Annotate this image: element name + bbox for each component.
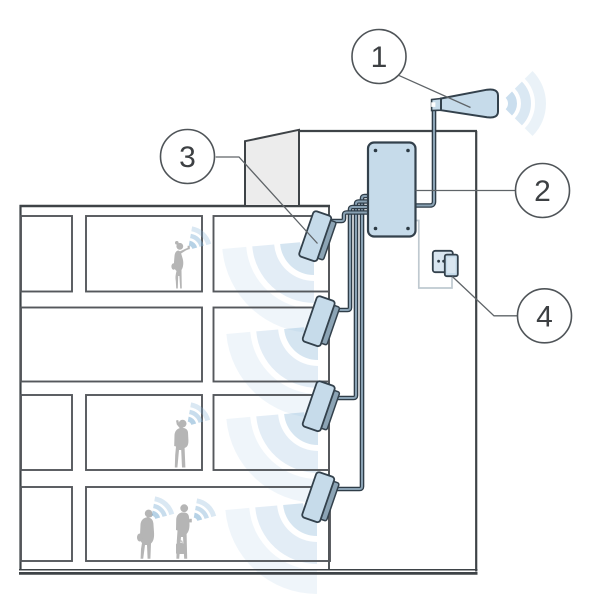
signal-booster-diagram: 1 2 3 4 <box>0 0 600 600</box>
person-floor4-man-phone-at-ear <box>137 510 154 559</box>
screw <box>406 149 410 153</box>
diagram-canvas: 1 2 3 4 <box>0 0 600 600</box>
callouts: 1 2 3 4 <box>161 30 572 343</box>
room <box>86 216 202 292</box>
room <box>21 487 72 561</box>
callout-2-number: 2 <box>534 175 551 208</box>
screw <box>374 227 378 231</box>
phone-signal-floor3 <box>188 402 210 424</box>
roof-penthouse <box>245 130 299 206</box>
booster-enclosure <box>368 143 416 237</box>
screw <box>374 149 378 153</box>
person-floor1-woman-with-phone <box>171 241 189 289</box>
callout-4-leader <box>452 277 518 316</box>
phone-signal-floor4-right <box>194 498 216 520</box>
outdoor-signal-fan <box>506 71 546 136</box>
person-floor3-man-with-phone <box>174 420 188 468</box>
screw <box>406 227 410 231</box>
indoor-antenna-floor1 <box>298 210 337 264</box>
indoor-antenna-floor3 <box>302 380 341 434</box>
phone-signal-floor4-left <box>152 496 174 518</box>
power-plug-face <box>447 257 455 273</box>
outlet-hole <box>437 260 440 263</box>
callout-1-number: 1 <box>371 41 388 74</box>
callout-4-number: 4 <box>536 300 553 333</box>
phone-signal-fans <box>152 226 216 520</box>
room <box>21 308 202 382</box>
room <box>21 216 72 292</box>
room <box>21 395 72 470</box>
mount-notch <box>431 102 435 107</box>
power-connection <box>416 221 458 289</box>
phone-signal-floor1 <box>189 226 211 248</box>
outdoor-donor-antenna <box>431 71 546 136</box>
callout-3-number: 3 <box>179 141 196 174</box>
indoor-antenna-floor2 <box>302 295 341 349</box>
outdoor-antenna-body <box>441 89 498 117</box>
person-floor4-man-with-briefcase <box>176 504 192 558</box>
signal-booster-unit <box>368 143 416 237</box>
